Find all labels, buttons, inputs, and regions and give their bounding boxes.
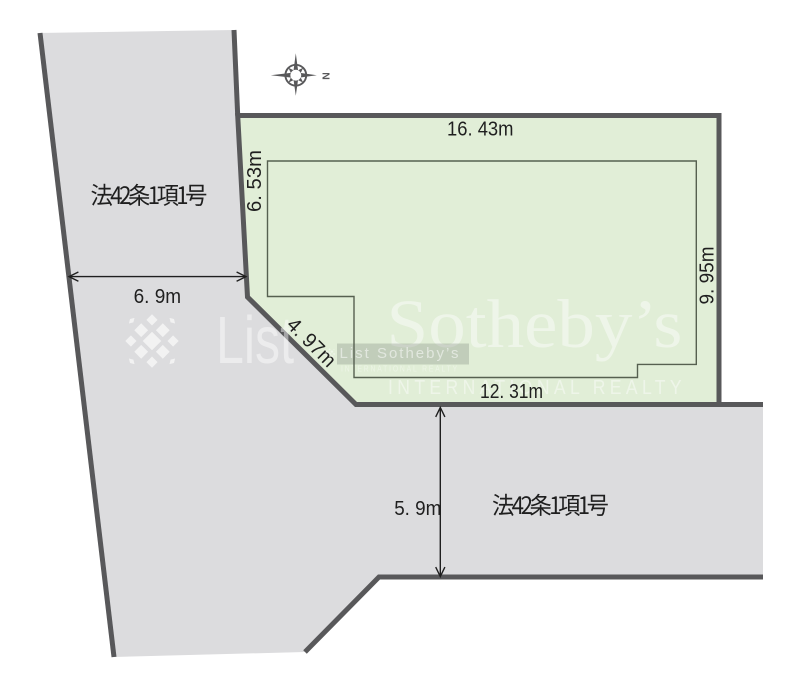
svg-text:List Sotheby’s: List Sotheby’s (340, 345, 461, 362)
svg-text:INTERNATIONAL REALTY: INTERNATIONAL REALTY (341, 365, 459, 374)
svg-text:5. 9m: 5. 9m (394, 497, 441, 520)
svg-text:N: N (320, 72, 332, 80)
svg-text:9. 95m: 9. 95m (696, 247, 719, 305)
svg-text:16. 43m: 16. 43m (447, 118, 514, 141)
svg-text:6. 53m: 6. 53m (243, 150, 266, 212)
svg-text:List: List (216, 303, 294, 378)
svg-text:12. 31m: 12. 31m (480, 380, 543, 403)
svg-text:6. 9m: 6. 9m (134, 285, 182, 308)
